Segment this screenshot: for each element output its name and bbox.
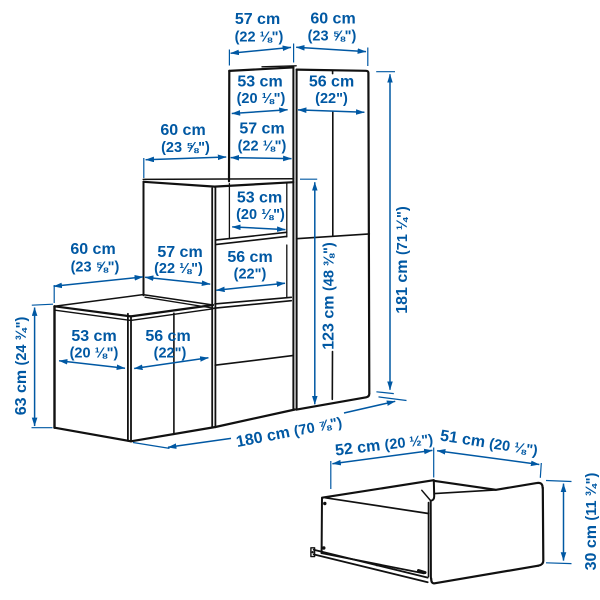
svg-text:(22 ⅛"): (22 ⅛") xyxy=(235,30,284,46)
svg-text:(22"): (22") xyxy=(315,91,348,107)
svg-text:(20 ⅛"): (20 ⅛") xyxy=(236,207,285,223)
svg-text:53 cm: 53 cm xyxy=(237,190,282,207)
svg-text:60 cm: 60 cm xyxy=(70,241,115,258)
svg-text:(23 ⅝"): (23 ⅝") xyxy=(161,140,210,156)
svg-text:53 cm: 53 cm xyxy=(71,328,116,345)
svg-text:(23 ⅝"): (23 ⅝") xyxy=(71,260,120,276)
svg-text:56 cm: 56 cm xyxy=(309,74,354,91)
svg-text:60 cm: 60 cm xyxy=(310,11,355,28)
svg-text:(20 ⅛"): (20 ⅛") xyxy=(237,91,286,107)
svg-text:123 cm (48 ⅜"): 123 cm (48 ⅜") xyxy=(320,242,337,350)
svg-text:63 cm (24 ¾"): 63 cm (24 ¾") xyxy=(13,317,30,416)
svg-text:(22 ⅛"): (22 ⅛") xyxy=(154,261,203,277)
svg-text:(20 ⅛"): (20 ⅛") xyxy=(70,346,119,362)
svg-text:30 cm (11 ¾"): 30 cm (11 ¾") xyxy=(583,472,600,570)
svg-text:57 cm: 57 cm xyxy=(235,11,280,28)
svg-text:(22"): (22") xyxy=(234,267,267,283)
svg-text:(23 ⅝"): (23 ⅝") xyxy=(308,29,357,45)
svg-text:56 cm: 56 cm xyxy=(145,328,190,345)
svg-text:60 cm: 60 cm xyxy=(160,122,205,139)
svg-text:181 cm (71 ¼"): 181 cm (71 ¼") xyxy=(394,206,411,314)
svg-text:(22 ⅛"): (22 ⅛") xyxy=(238,139,287,155)
svg-text:(22"): (22") xyxy=(154,346,187,362)
svg-text:53 cm: 53 cm xyxy=(237,74,282,91)
svg-text:57 cm: 57 cm xyxy=(157,244,202,261)
svg-text:57 cm: 57 cm xyxy=(239,121,284,138)
svg-text:56 cm: 56 cm xyxy=(227,249,272,266)
